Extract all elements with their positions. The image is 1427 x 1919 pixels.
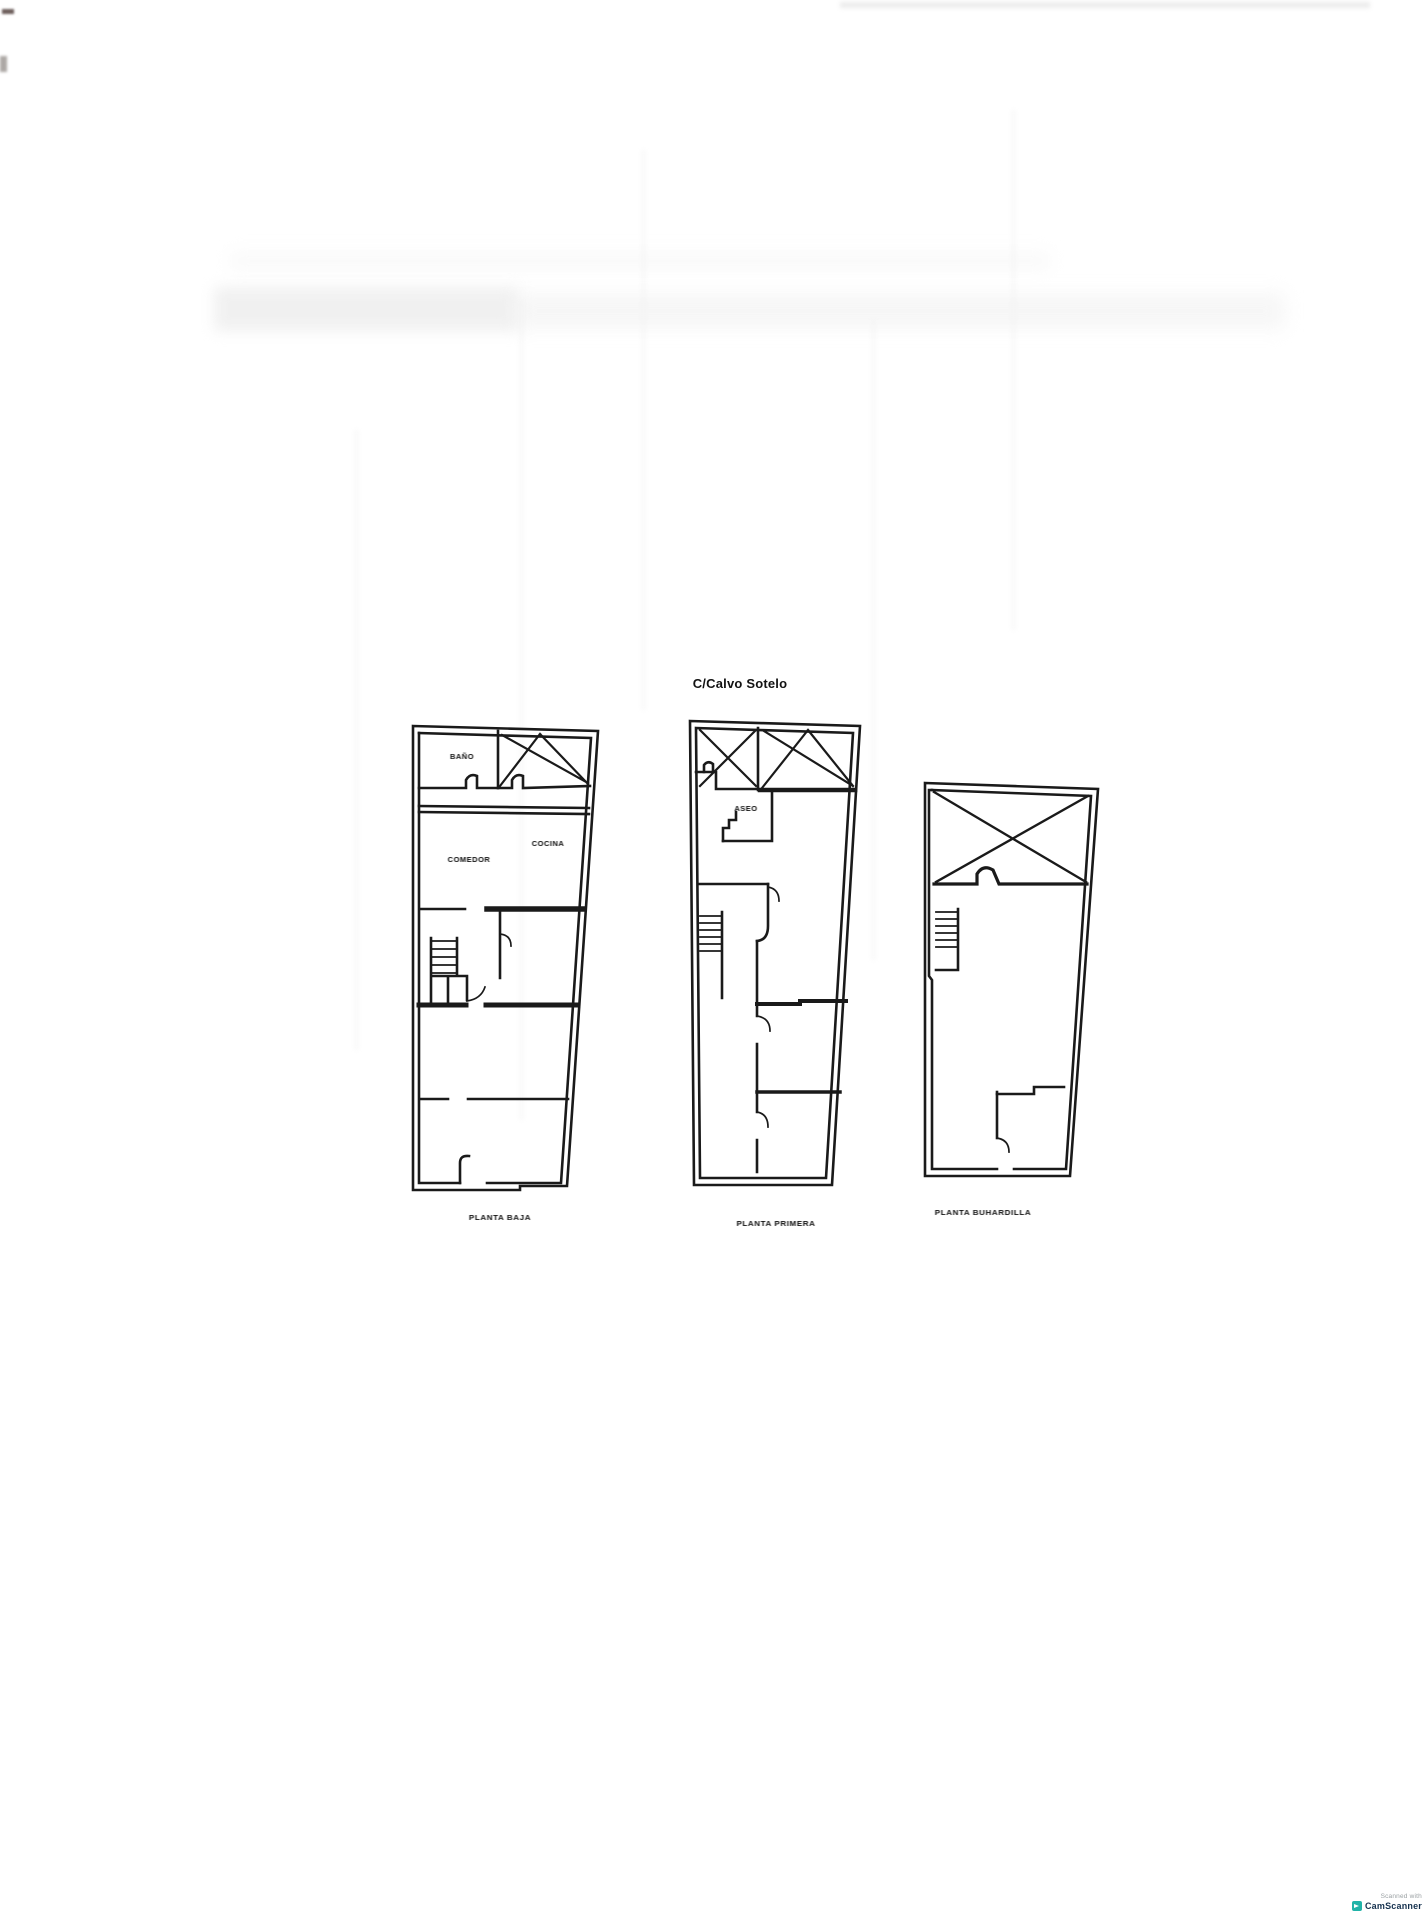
camscanner-logo-icon [1352, 1901, 1362, 1911]
plan-planta-primera [690, 721, 860, 1185]
room-label-bano: BAÑO [440, 752, 484, 761]
room-label-comedor: COMEDOR [443, 855, 495, 864]
room-label-cocina: COCINA [524, 839, 572, 848]
plan-caption-planta-primera: PLANTA PRIMERA [716, 1219, 836, 1228]
scanned-page: C/Calvo Sotelo [0, 0, 1427, 1919]
watermark-scanned-with-text: Scanned with [1381, 1893, 1422, 1901]
plan-caption-planta-baja: PLANTA BAJA [450, 1213, 550, 1222]
room-label-aseo: ASEO [728, 804, 764, 813]
plan-planta-buhardilla [925, 783, 1098, 1176]
floorplan-drawing [0, 0, 1427, 1919]
watermark-camscanner-text: CamScanner [1365, 1901, 1422, 1912]
plan-caption-planta-buhardilla: PLANTA BUHARDILLA [913, 1208, 1053, 1217]
camscanner-watermark: Scanned with CamScanner [1352, 1893, 1422, 1912]
plan-planta-baja [413, 726, 598, 1190]
